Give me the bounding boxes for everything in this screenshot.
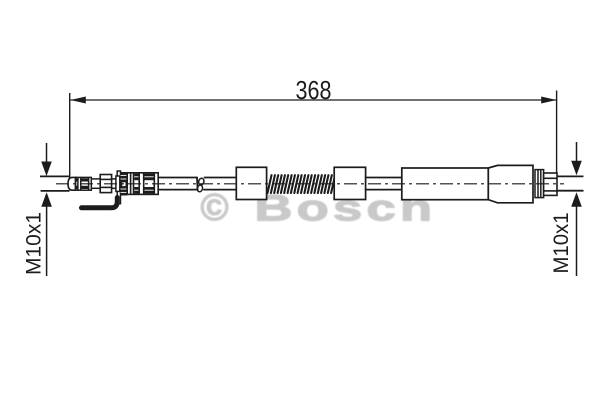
svg-text:M10x1: M10x1 [23, 212, 46, 275]
svg-text:368: 368 [296, 75, 332, 105]
svg-text:©: © [201, 187, 229, 229]
svg-text:M10x1: M10x1 [550, 213, 573, 274]
